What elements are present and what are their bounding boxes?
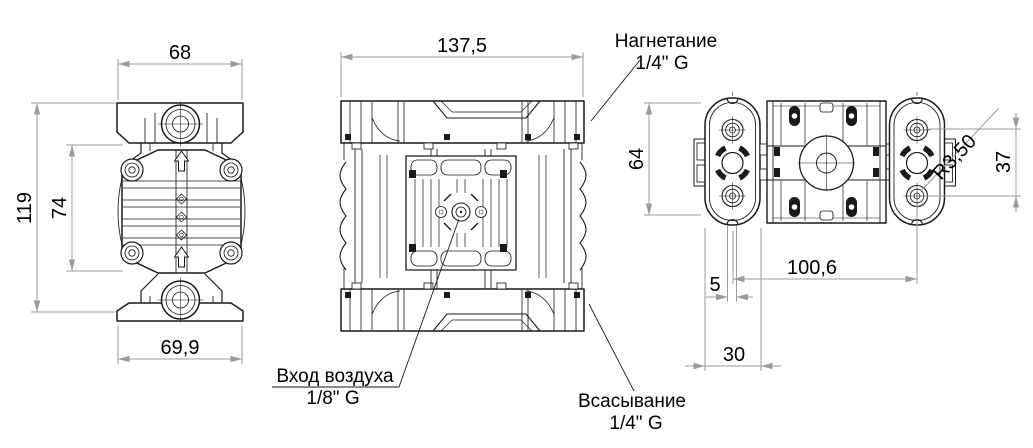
dim-front-bottom-width: 69,9 xyxy=(118,326,242,364)
front-view xyxy=(117,102,245,323)
air-inlet-label: Вход воздуха xyxy=(276,366,394,387)
top-view xyxy=(694,92,956,225)
suction-thread: 1/4" G xyxy=(609,413,662,434)
dim-text-5: 5 xyxy=(709,274,720,296)
flow-arrow-up-bottom xyxy=(175,247,189,267)
air-inlet-thread: 1/8" G xyxy=(306,388,359,409)
discharge-leader-line xyxy=(591,60,640,121)
side-view xyxy=(340,101,586,331)
dim-text-119: 119 xyxy=(14,192,36,224)
side-top-manifold xyxy=(341,101,584,143)
air-inlet-port xyxy=(452,203,470,221)
dim-text-100-6: 100,6 xyxy=(787,257,837,279)
front-top-port xyxy=(158,102,204,147)
dim-text-37: 37 xyxy=(993,151,1015,173)
suction-label: Всасывание xyxy=(578,391,686,412)
dim-text-74: 74 xyxy=(49,197,71,219)
dim-front-top-width: 68 xyxy=(118,42,242,100)
discharge-label: Нагнетание xyxy=(615,31,717,52)
top-left-foot xyxy=(694,98,760,225)
port-labels: Нагнетание 1/4" G Вход воздуха 1/8" G Вс… xyxy=(272,31,717,434)
dim-front-body-height: 74 xyxy=(49,145,123,271)
flow-arrow-up-top xyxy=(175,151,189,171)
dim-text-30: 30 xyxy=(723,344,745,366)
top-center-body xyxy=(760,101,893,223)
front-bottom-port xyxy=(158,278,204,323)
dim-text-68: 68 xyxy=(169,42,191,64)
dim-side-width: 137,5 xyxy=(341,35,583,97)
dim-text-64: 64 xyxy=(626,148,648,170)
suction-leader-line xyxy=(589,304,634,391)
side-right-bellows xyxy=(564,143,586,289)
label-air-inlet: Вход воздуха 1/8" G xyxy=(272,219,459,409)
dim-text-69-9: 69,9 xyxy=(161,337,200,359)
dim-text-137-5: 137,5 xyxy=(437,35,487,57)
side-left-bellows xyxy=(340,143,362,289)
side-bottom-manifold xyxy=(341,289,584,331)
discharge-thread: 1/4" G xyxy=(635,53,688,74)
dim-top-height: 64 xyxy=(626,103,701,215)
drawing-canvas: 68 119 74 69,9 137,5 64 xyxy=(0,0,1033,448)
dim-notch-width: 5 xyxy=(706,226,753,302)
label-suction: Всасывание 1/4" G xyxy=(578,304,686,434)
pump-drawing-svg: 68 119 74 69,9 137,5 64 xyxy=(0,0,1033,448)
label-discharge: Нагнетание 1/4" G xyxy=(591,31,717,121)
side-center-plate xyxy=(406,149,516,289)
